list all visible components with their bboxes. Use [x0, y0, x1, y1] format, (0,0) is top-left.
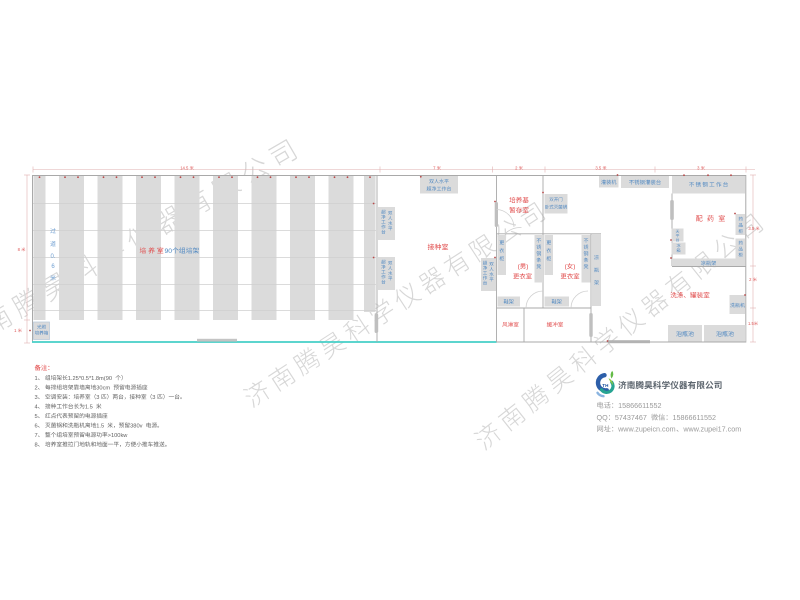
svg-text:14.5: 14.5 [180, 166, 189, 171]
svg-text:1.5: 1.5 [748, 321, 754, 326]
svg-text:5: 5 [35, 414, 38, 420]
svg-text:QQ: QQ [597, 413, 609, 422]
svg-text:>100kw: >100kw [108, 433, 129, 439]
svg-text:4: 4 [35, 404, 38, 410]
svg-text:): ) [573, 264, 575, 271]
svg-text:3: 3 [96, 395, 99, 401]
svg-text:15866611552: 15866611552 [618, 401, 661, 410]
svg-text:3: 3 [35, 395, 38, 401]
svg-text:3: 3 [152, 395, 155, 401]
svg-text:3.5: 3.5 [595, 166, 601, 171]
svg-text:1.5: 1.5 [85, 404, 93, 410]
svg-text:1.5: 1.5 [96, 423, 104, 429]
svg-text:www.zupeicn.com: www.zupeicn.com [617, 424, 676, 433]
svg-text:1.25*0.5*1.8m(90: 1.25*0.5*1.8m(90 [68, 376, 112, 382]
svg-text:(: ( [518, 264, 521, 271]
svg-text:2: 2 [749, 277, 752, 282]
svg-text:3.5: 3.5 [748, 226, 754, 231]
svg-text:www.zupei17.com: www.zupei17.com [682, 424, 741, 433]
svg-text:1: 1 [35, 376, 38, 382]
svg-text:2: 2 [35, 385, 38, 391]
svg-text:): ) [526, 264, 528, 271]
svg-text:6: 6 [51, 264, 55, 270]
svg-text:6: 6 [35, 423, 38, 429]
svg-text:7: 7 [35, 433, 38, 439]
svg-text:57437467: 57437467 [615, 413, 647, 422]
svg-text:TH: TH [602, 383, 609, 388]
svg-text:0.: 0. [50, 254, 55, 260]
svg-text:1: 1 [14, 328, 17, 333]
svg-text:90: 90 [165, 248, 173, 255]
svg-text:15866611552: 15866611552 [673, 413, 716, 422]
svg-text:380v: 380v [130, 423, 142, 429]
svg-text:8: 8 [18, 247, 21, 252]
svg-text:30cm: 30cm [96, 385, 110, 391]
svg-text:(: ( [565, 264, 568, 271]
svg-text:8: 8 [35, 442, 38, 448]
